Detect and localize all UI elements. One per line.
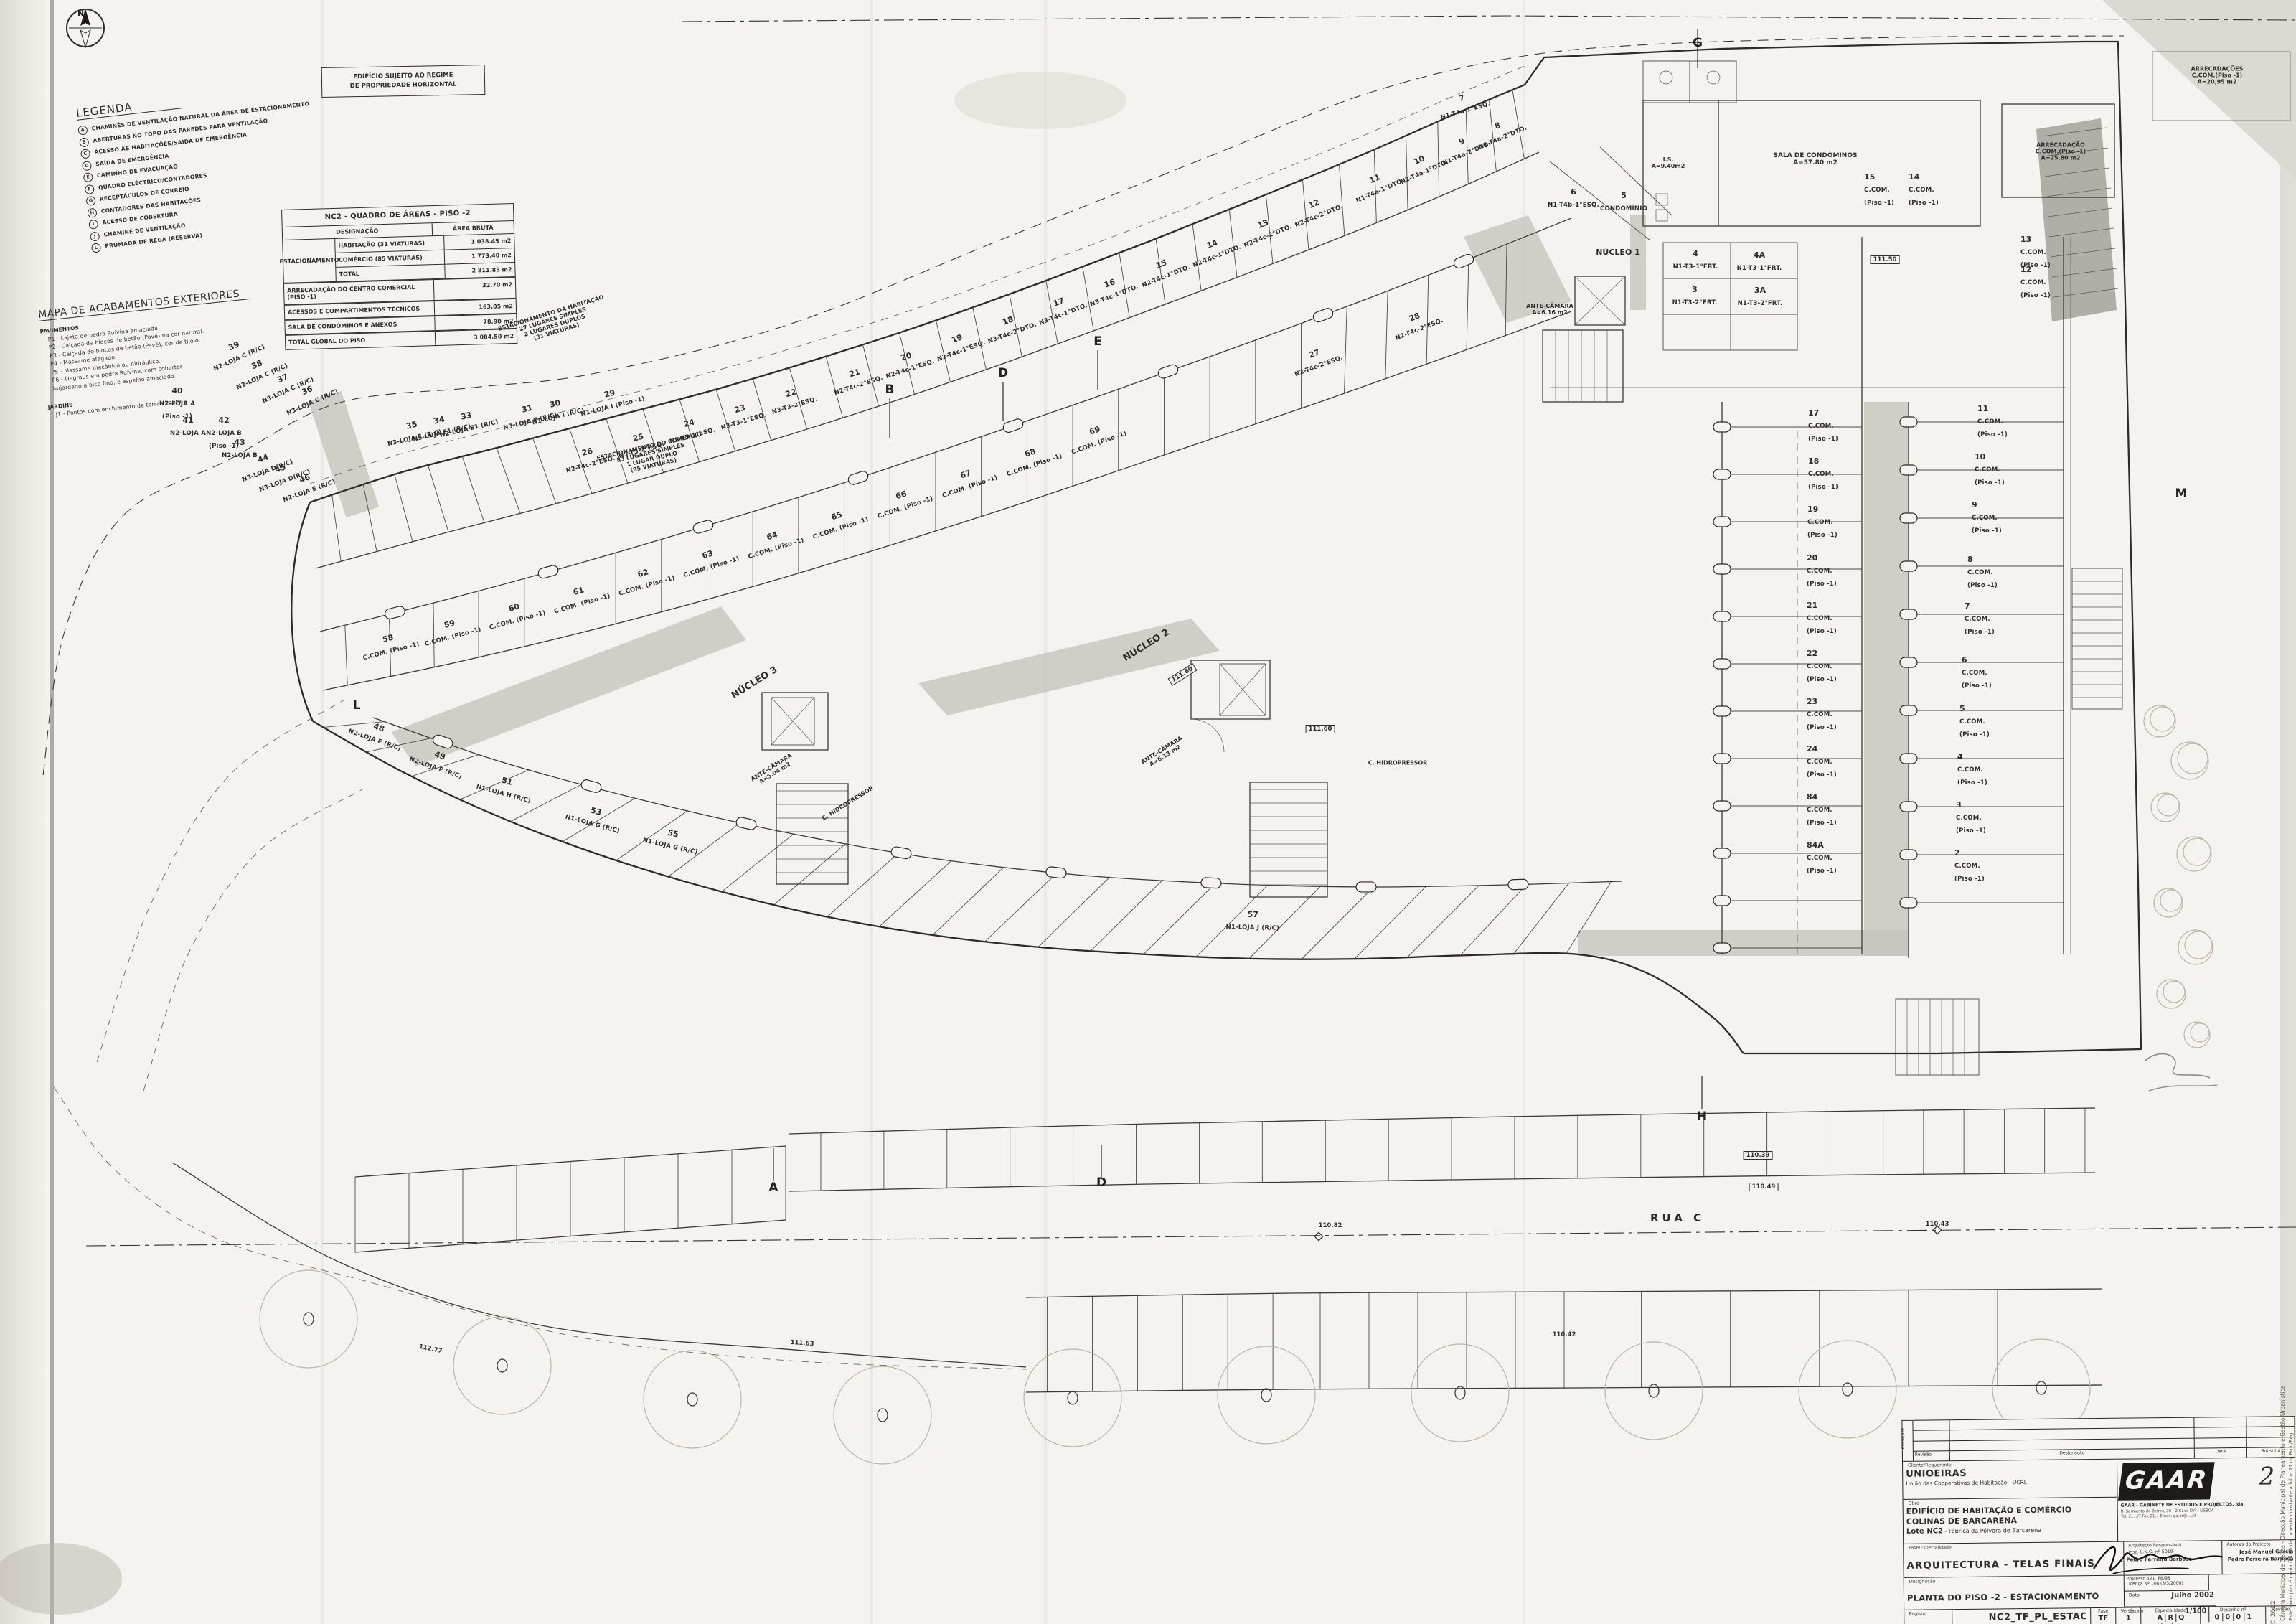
legend-key-icon: I (88, 219, 98, 229)
desenho-col: Desenho nº (2202, 1607, 2264, 1614)
signature (2081, 1535, 2239, 1581)
registo-value: NC2_TF_PL_ESTAC (1952, 1608, 2091, 1624)
stall-label: 4C.COM.(Piso -1) (1957, 753, 1987, 787)
gaar-logo: GAAR (2118, 1462, 2215, 1500)
legend-key-icon: E (83, 172, 93, 182)
area-table-group-label: ESTACIONAMENTO (283, 239, 337, 283)
margin-note-1: Câmara Municipal de Oeiras - Direcção Mu… (2279, 1386, 2286, 1621)
legend-key-icon: H (87, 207, 97, 217)
especialidade-col: Especialidade (2142, 1607, 2198, 1615)
client-name: UNIOEIRAS (1906, 1468, 1967, 1480)
section-marker: G (1693, 36, 1703, 50)
legend-key-icon: L (91, 243, 101, 253)
stall-label: 43N2-LOJA B (222, 438, 258, 460)
margin-note-2: Este exemplar é cópia fiel do documento … (2288, 1431, 2294, 1620)
stall-label: 2C.COM.(Piso -1) (1954, 849, 1985, 883)
versao-col: Versão (2116, 1607, 2140, 1614)
client-label: Cliente/Requerente (1906, 1460, 2114, 1469)
title-block: Alterações Revisão Designação Data Subst… (1901, 1416, 2296, 1624)
drawing-sheet: N LEGENDA ACHAMINÉS DE VENTILAÇÃO NATURA… (0, 0, 2296, 1624)
legend-key-icon: B (79, 137, 89, 147)
stall-label: 24C.COM.(Piso -1) (1807, 745, 1837, 779)
stall-label: 41N2-LOJA A (170, 416, 206, 438)
stall-label: 12C.COM.(Piso -1) (2020, 266, 2051, 300)
stall-label: 3C.COM.(Piso -1) (1956, 801, 1986, 835)
stall-label: 8C.COM.(Piso -1) (1967, 555, 1998, 590)
section-marker: L (353, 698, 361, 713)
north-letter: N (77, 9, 84, 18)
elevation-label: 110.39 (1744, 1151, 1773, 1160)
stall-label: 10C.COM.(Piso -1) (1975, 453, 2005, 487)
plan-annotation: SALA DE CONDÓMINOSA=57.80 m2 (1774, 152, 1858, 166)
section-marker: A (768, 1181, 778, 1195)
section-marker: D (1096, 1175, 1106, 1190)
stall-label: 22C.COM.(Piso -1) (1807, 649, 1837, 684)
data-col: Data (2195, 1448, 2247, 1458)
company-logo-cell: GAAR 2 GAAR - GABINETE DE ESTUDOS E PROJ… (2117, 1458, 2295, 1541)
registo-label: Registo (1906, 1610, 1949, 1618)
stall-label: 19C.COM.(Piso -1) (1807, 505, 1838, 540)
stall-label: 5CONDOMÍNIO (1600, 192, 1647, 213)
client-subname: União das Cooperativas de Habitação - UC… (1906, 1478, 2114, 1487)
designacao-cell: Designação PLANTA DO PISO -2 - ESTACIONA… (1904, 1576, 2125, 1610)
elevation-label: 111.60 (1306, 725, 1335, 733)
stall-label: 3N1-T3-2°FRT. (1672, 286, 1718, 307)
elevation-label: 110.49 (1749, 1183, 1779, 1191)
client-cell: Cliente/Requerente UNIOEIRAS União das C… (1903, 1460, 2117, 1500)
plan-annotation: ARRECADAÇÕESC.COM.(Piso -1)A=20,95 m2 (2191, 67, 2244, 86)
sheet-page-number: 2 (2259, 1462, 2274, 1491)
section-marker: D (998, 366, 1008, 380)
fase-val: TF (2098, 1615, 2108, 1623)
architect-cell: Arquitecto Responsável insc. L.N.O. nº 5… (2124, 1541, 2222, 1574)
stall-label: 7C.COM.(Piso -1) (1965, 602, 1995, 637)
data-value: Julho 2002 (2171, 1591, 2214, 1600)
data-label: Data (2127, 1592, 2142, 1598)
legend-key-icon: C (80, 149, 90, 159)
company-contacts: Tel. 21…/7 Fax 21… Email: ga.ar@….pt (2121, 1513, 2292, 1520)
revision-table: Alterações Revisão Designação Data Subst… (1902, 1417, 2295, 1462)
stall-label: 5C.COM.(Piso -1) (1959, 705, 1990, 739)
stall-label: 17C.COM.(Piso -1) (1808, 409, 1838, 443)
versao-val: 1 (2126, 1615, 2131, 1623)
elevation-label: 110.43 (1926, 1221, 1949, 1228)
stall-label: 15C.COM.(Piso -1) (1864, 173, 1894, 207)
licenca: Licença Nº 146 (3/3/2000) (2127, 1580, 2206, 1586)
stall-label: 84C.COM.(Piso -1) (1807, 793, 1837, 827)
plan-annotation: C. HIDROPRESSOR (1368, 761, 1428, 767)
section-marker: B (885, 382, 895, 397)
regime-note-line2: DE PROPRIEDADE HORIZONTAL (325, 80, 481, 92)
stall-label: 21C.COM.(Piso -1) (1807, 601, 1837, 636)
legend-key-icon: D (82, 161, 92, 171)
stall-label: 4N1-T3-1°FRT. (1673, 250, 1718, 271)
designacao-value: PLANTA DO PISO -2 - ESTACIONAMENTO (1907, 1591, 2121, 1603)
stall-label: 57N1-LOJA J (R/C) (1225, 910, 1279, 933)
section-marker: E (1093, 334, 1102, 349)
elevation-label: 111.50 (1871, 255, 1900, 264)
plan-annotation: ARRECADAÇÃOC.COM.(Piso -1)A=25.80 m2 (2036, 143, 2086, 162)
stall-label: 9C.COM.(Piso -1) (1972, 501, 2002, 535)
stall-label: 14C.COM.(Piso -1) (1909, 173, 1939, 207)
stall-label: 3AN1-T3-2°FRT. (1738, 286, 1783, 308)
stall-label: 6N1-T4b-1°ESQ. (1548, 188, 1599, 210)
margin-copyright: © 2022 (2270, 1600, 2277, 1624)
obra-lote: Lote NC2 (1906, 1527, 1943, 1536)
plan-annotation: I.S.A=9.40m2 (1652, 157, 1685, 170)
stall-label: 4AN1-T3-1°FRT. (1737, 251, 1782, 273)
legend-key-icon: G (85, 196, 95, 206)
regime-note: EDIFÍCIO SUJEITO AO REGIME DE PROPRIEDAD… (321, 65, 486, 97)
stall-label: 84AC.COM.(Piso -1) (1807, 841, 1837, 876)
plan-annotation: ANTE-CÂMARAA=6.16 m2 (1526, 304, 1573, 316)
elevation-label: 110.42 (1553, 1331, 1576, 1338)
elevation-label: 110.82 (1319, 1222, 1342, 1229)
area-table-col-area: ÁREA BRUTA (432, 221, 514, 235)
stall-label: 18C.COM.(Piso -1) (1808, 457, 1838, 492)
data-cell: Data Julho 2002 (2125, 1590, 2216, 1607)
area-table: NC2 - QUADRO DE ÁREAS - PISO -2 DESIGNAÇ… (281, 203, 517, 350)
section-marker: H (1697, 1109, 1707, 1124)
north-arrow: N (63, 4, 108, 49)
legend-key-icon: J (90, 231, 100, 241)
stall-label: 11C.COM.(Piso -1) (1977, 405, 2008, 439)
legend-key-icon: F (85, 184, 95, 194)
road-name: RUA C (1650, 1211, 1705, 1225)
designacao-label: Designação (1907, 1577, 2121, 1585)
stall-label: 6C.COM.(Piso -1) (1962, 656, 1992, 690)
fase-col: Fase (2091, 1608, 2115, 1615)
stall-label: 20C.COM.(Piso -1) (1807, 554, 1837, 588)
obra-lote-rest: - Fábrica da Pólvora de Barcarena (1943, 1526, 2041, 1534)
section-marker: M (2175, 487, 2188, 501)
legend-key-icon: A (77, 125, 88, 135)
plan-annotation: NÚCLEO 1 (1596, 248, 1640, 257)
alteracoes-label: Alterações (1901, 1428, 1905, 1449)
stall-label: 23C.COM.(Piso -1) (1807, 698, 1837, 732)
revisao-col: Revisão (1914, 1451, 1950, 1461)
